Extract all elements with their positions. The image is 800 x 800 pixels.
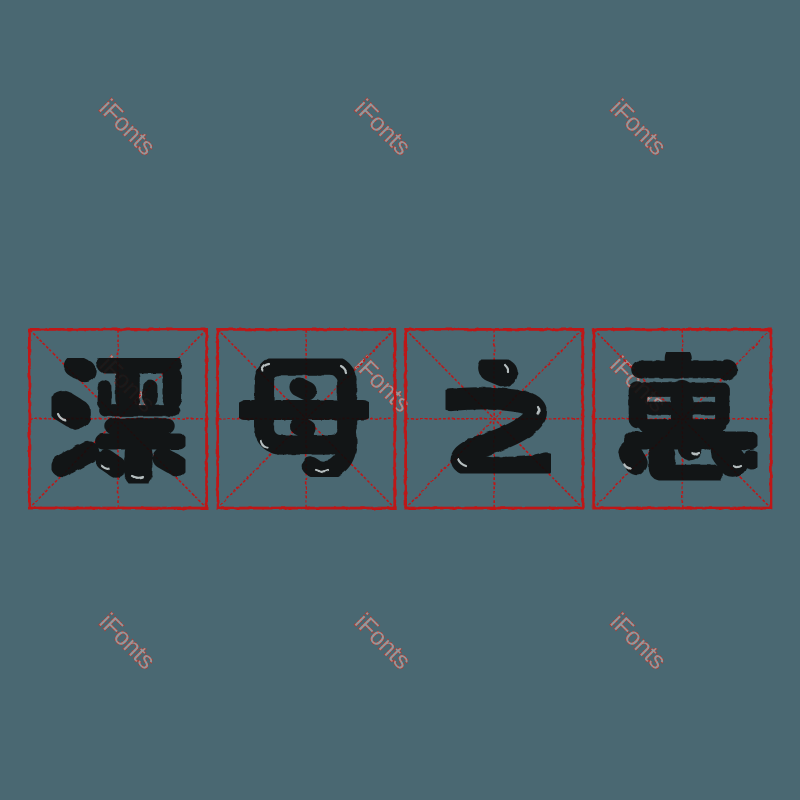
svg-text:iFonts: iFonts (94, 95, 160, 161)
svg-text:iFonts: iFonts (605, 95, 671, 161)
svg-text:iFonts: iFonts (349, 95, 415, 161)
svg-text:iFonts: iFonts (605, 609, 671, 675)
svg-text:iFonts: iFonts (349, 609, 415, 675)
svg-text:iFonts: iFonts (94, 609, 160, 675)
